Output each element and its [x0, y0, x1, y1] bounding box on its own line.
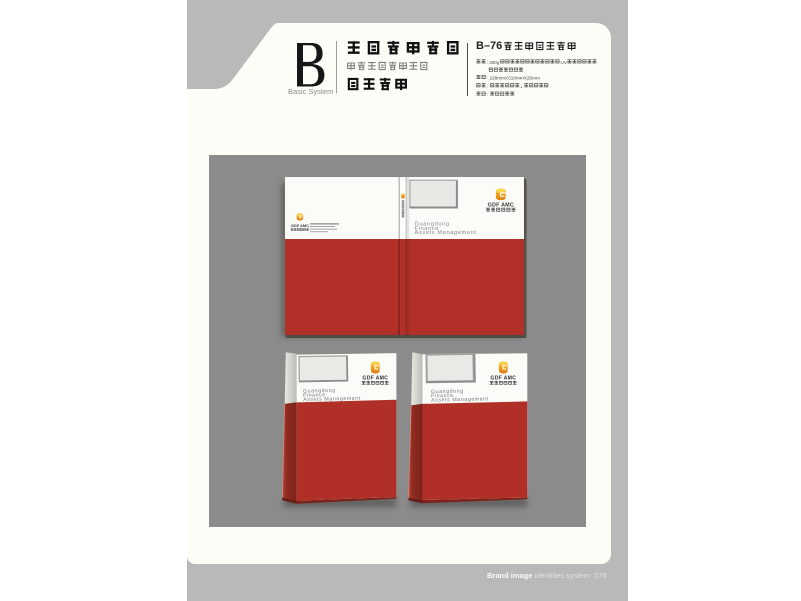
- svg-text:UV: UV: [561, 60, 568, 65]
- svg-text:GDF AMC: GDF AMC: [490, 375, 516, 381]
- svg-text:Assets Management: Assets Management: [431, 396, 489, 403]
- svg-text:Assets Management: Assets Management: [415, 230, 477, 236]
- svg-text:228mmX310mmX20mm: 228mmX310mmX20mm: [489, 75, 540, 80]
- svg-text::: :: [487, 75, 488, 81]
- svg-text::: :: [487, 60, 488, 66]
- svg-text:GDF AMC: GDF AMC: [488, 202, 514, 208]
- svg-text:GDF AMC: GDF AMC: [291, 223, 309, 228]
- svg-text::: :: [487, 84, 488, 90]
- svg-text:300g: 300g: [489, 60, 500, 65]
- svg-text:Assets Management: Assets Management: [303, 396, 361, 403]
- svg-text:GDF AMC: GDF AMC: [362, 375, 388, 381]
- svg-text::: :: [487, 92, 488, 98]
